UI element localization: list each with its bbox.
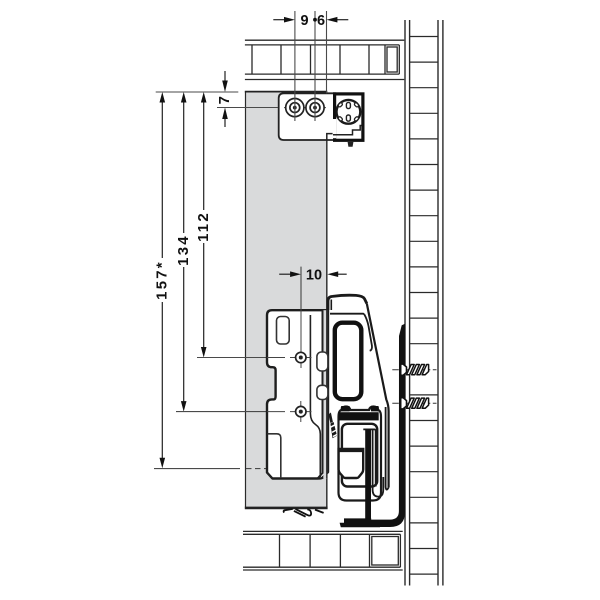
svg-text:7: 7 [216,96,233,104]
svg-text:6: 6 [317,13,325,29]
svg-text:9: 9 [301,13,309,29]
svg-text:10: 10 [306,268,322,284]
svg-text:112: 112 [195,211,212,242]
svg-text:157*: 157* [154,260,171,300]
svg-text:134: 134 [175,234,192,266]
